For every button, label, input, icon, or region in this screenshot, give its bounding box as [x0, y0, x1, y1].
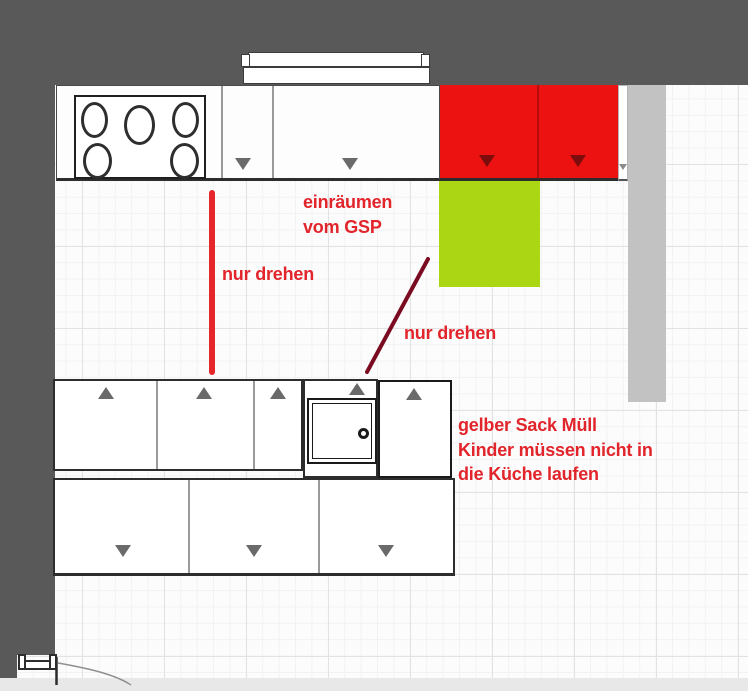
door-direction-triangle — [349, 383, 365, 395]
top-counter[interactable] — [56, 85, 440, 181]
sink-cabinet[interactable] — [303, 379, 378, 478]
cabinet-divider — [537, 85, 539, 178]
annotation-turn-2: nur drehen — [404, 323, 496, 344]
wall-cabinet-red-pair[interactable] — [440, 85, 618, 181]
island-lower-cabinets[interactable] — [53, 478, 455, 576]
door-direction-triangle — [246, 545, 262, 557]
window-jamb-left — [241, 54, 250, 67]
door-direction-triangle — [570, 155, 586, 167]
annotation-yellow-sack-line1: gelber Sack Müll — [458, 413, 653, 438]
burner-icon — [170, 143, 199, 179]
door-direction-triangle — [479, 155, 495, 167]
cabinet-divider — [188, 480, 190, 573]
floor-plan-canvas: einräumen vom GSP nur drehen nur drehen … — [0, 0, 748, 691]
cabinet-divider — [156, 381, 158, 469]
door-direction-triangle — [270, 387, 286, 399]
cabinet-end-panel — [618, 85, 628, 181]
window-sill — [243, 67, 430, 84]
cabinet-divider — [272, 86, 274, 178]
door-direction-triangle — [378, 545, 394, 557]
door-jamb-right — [49, 654, 57, 670]
annotation-yellow-sack: gelber Sack Müll Kinder müssen nicht in … — [458, 413, 653, 487]
dark-red-marker-line-diagonal — [367, 259, 428, 372]
annotation-yellow-sack-line2: Kinder müssen nicht in — [458, 438, 653, 463]
island-upper-cabinets[interactable] — [53, 379, 303, 471]
wall-left-lower — [0, 655, 17, 679]
cabinet-divider — [253, 381, 255, 469]
cabinet-divider — [221, 86, 223, 178]
door-direction-triangle — [115, 545, 131, 557]
island-right-cabinet[interactable] — [378, 380, 452, 478]
sink-symbol — [307, 398, 377, 464]
door-direction-triangle — [98, 387, 114, 399]
cabinet-divider — [318, 480, 320, 573]
door-direction-triangle — [619, 164, 627, 170]
door-direction-triangle — [406, 388, 422, 400]
door-jamb-left — [18, 654, 26, 670]
door-direction-triangle — [235, 158, 251, 170]
annotation-gsp: einräumen vom GSP — [303, 190, 392, 240]
burner-icon — [83, 143, 112, 179]
annotation-gsp-line1: einräumen — [303, 190, 392, 215]
tall-column[interactable] — [628, 85, 666, 402]
annotation-turn-1: nur drehen — [222, 264, 314, 285]
wall-left — [0, 0, 55, 655]
highlight-green-rect[interactable] — [439, 181, 540, 287]
cooktop-symbol[interactable] — [74, 95, 206, 179]
burner-icon — [124, 105, 155, 145]
annotation-gsp-line2: vom GSP — [303, 215, 392, 240]
burner-icon — [81, 102, 108, 138]
faucet-hole-icon — [358, 428, 369, 439]
door-direction-triangle — [342, 158, 358, 170]
bottom-border-band — [0, 678, 748, 691]
window-jamb-right — [421, 54, 430, 67]
door-direction-triangle — [196, 387, 212, 399]
window-symbol-outer[interactable] — [248, 52, 424, 67]
burner-icon — [172, 102, 199, 138]
annotation-yellow-sack-line3: die Küche laufen — [458, 462, 653, 487]
